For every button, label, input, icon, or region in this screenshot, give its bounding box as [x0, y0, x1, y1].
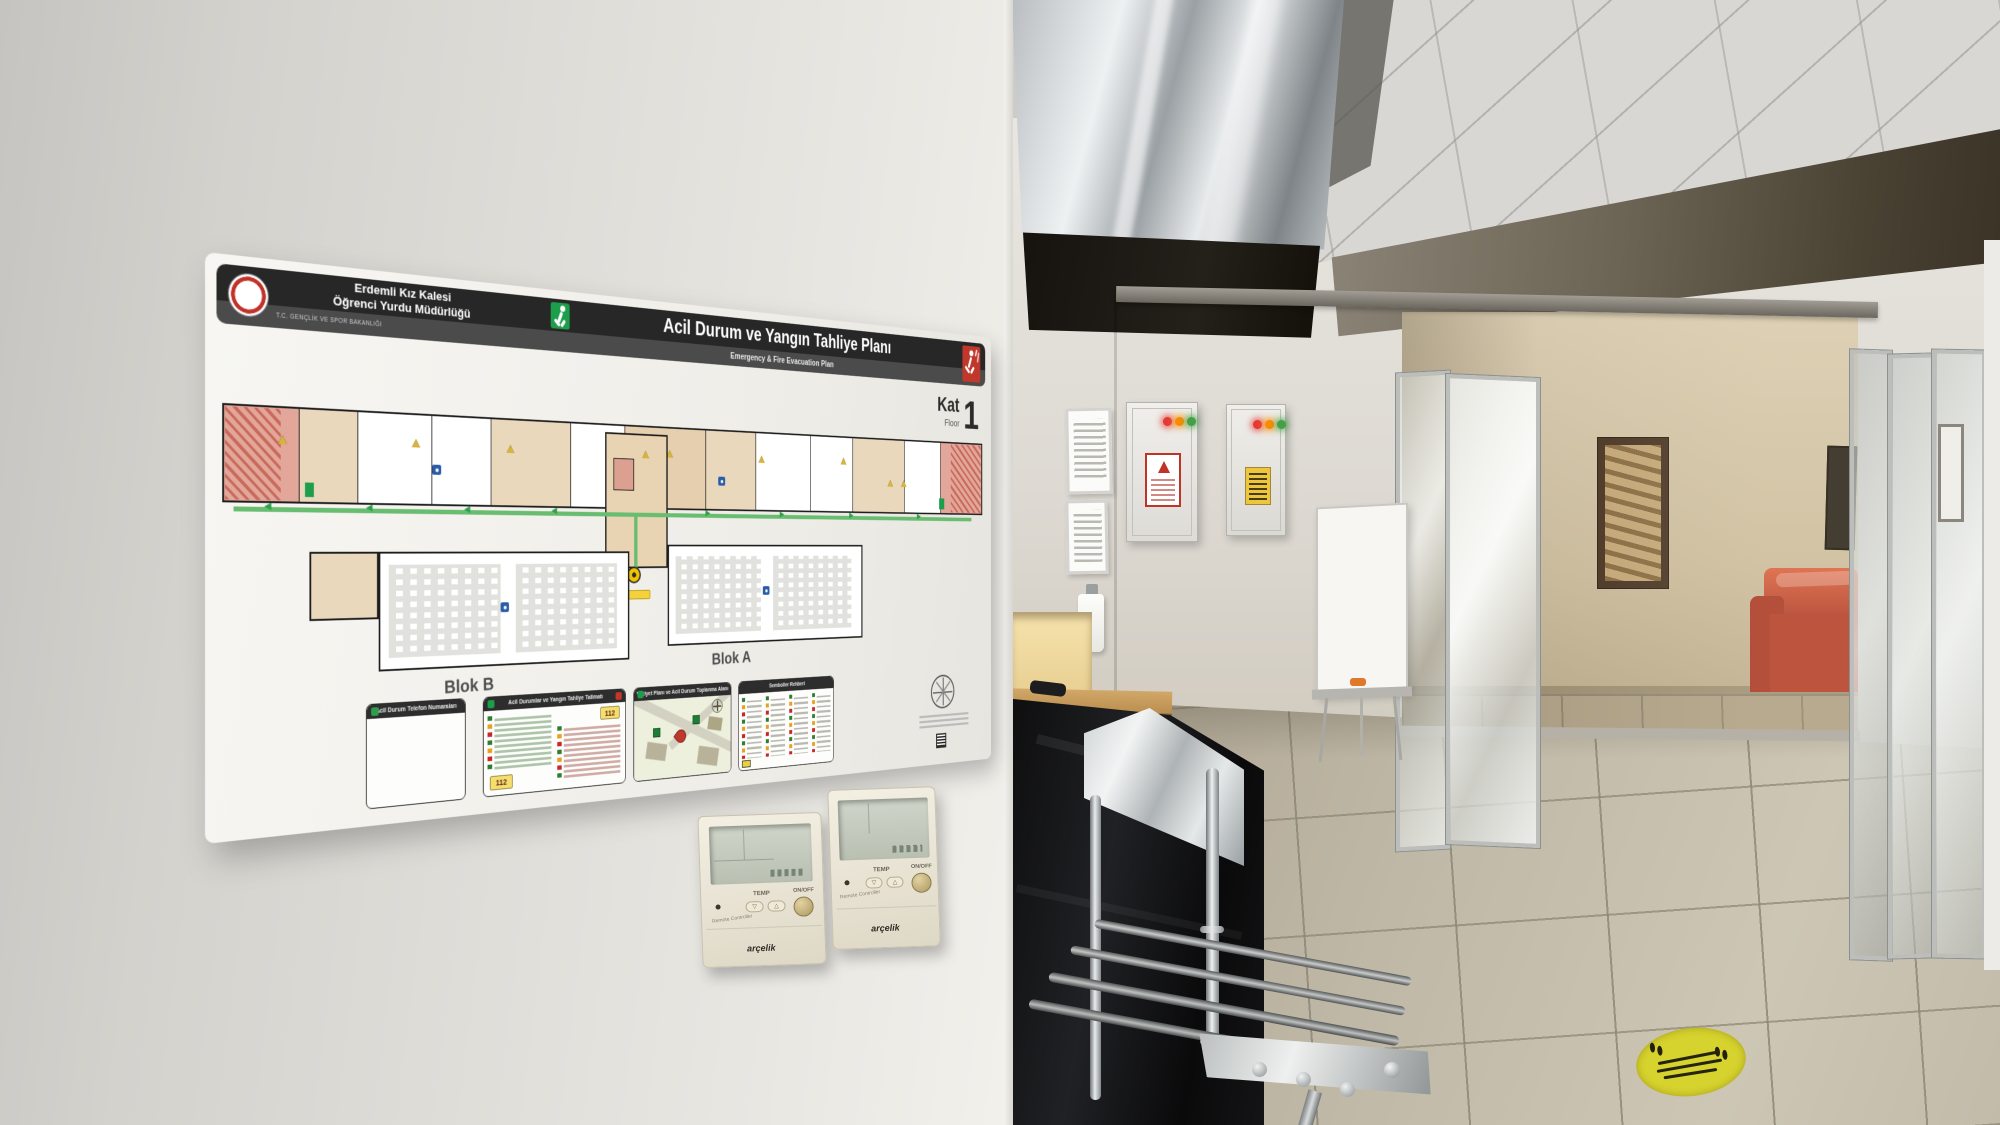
- fire-man-icon: [962, 345, 980, 383]
- plan-room: [853, 438, 904, 512]
- symbol-text-lines: [794, 694, 808, 755]
- plan-room: [755, 433, 810, 511]
- framed-document: [1065, 500, 1108, 575]
- led-amber: [1175, 417, 1184, 426]
- site-map: [634, 695, 731, 782]
- route-arrow-left: ◀: [366, 504, 373, 513]
- framed-document: [1065, 408, 1112, 495]
- thermostat-lcd: [709, 823, 813, 885]
- led-amber: [1265, 420, 1274, 429]
- assembly-point-icon: [653, 728, 660, 738]
- lcd-segment-marks: [892, 845, 922, 853]
- plan-room: [490, 419, 570, 506]
- map-building: [697, 746, 720, 767]
- core-stair-box: [613, 458, 634, 491]
- flipchart-board: [1316, 503, 1408, 698]
- hood-reflection: [1201, 0, 1284, 270]
- route-arrow-right: ▶: [917, 513, 921, 520]
- plan-room-strip: [222, 403, 982, 515]
- symbol-text-lines: [771, 695, 785, 756]
- producer-text-lines: [919, 712, 968, 731]
- lcd-grid-line: [743, 830, 745, 860]
- phones-panel: Acil Durum Telefon Numaraları: [366, 698, 466, 809]
- plan-room: [810, 436, 852, 511]
- open-door-panel: [1446, 374, 1540, 848]
- post-collar: [1200, 926, 1224, 933]
- instruction-text-lines: [564, 722, 621, 778]
- temp-up-button[interactable]: △: [886, 876, 903, 888]
- sticker-text-lines: [1151, 479, 1175, 501]
- electrical-panel: [1126, 402, 1198, 542]
- lobby-photo: Erdemli Kız Kalesi Öğrenci Yurdu Müdürlü…: [0, 0, 2000, 1125]
- floor-label: Floor: [916, 415, 959, 429]
- plan-room: [706, 431, 756, 510]
- orange-marker: [1350, 678, 1366, 686]
- led-red: [1253, 420, 1262, 429]
- facility-icon: [718, 477, 725, 486]
- phone-icon: [371, 707, 379, 716]
- hazard-triangle-icon: [841, 458, 847, 465]
- facility-icon: [501, 602, 509, 612]
- easel-leg: [1319, 698, 1329, 762]
- table-grid: [773, 556, 851, 631]
- thermostat-unit: Remote Controller TEMP ▽ △ ON/OFF arçeli…: [697, 812, 826, 968]
- symbol-text-lines: [817, 692, 831, 752]
- temp-down-button[interactable]: ▽: [865, 877, 882, 889]
- rail-end-knob: [1252, 1062, 1267, 1077]
- assembly-point-icon: [693, 715, 700, 725]
- footprints-icon: [1649, 1041, 1663, 1058]
- lcd-segment-marks: [770, 869, 804, 877]
- plan-room: [904, 441, 940, 513]
- document-text-lines: [1073, 419, 1106, 480]
- status-led: [844, 880, 849, 885]
- hood-dark-underside: [1020, 228, 1320, 340]
- power-button[interactable]: [911, 872, 932, 893]
- block-a-label: Blok A: [712, 648, 751, 669]
- rail-end-knob: [1384, 1062, 1400, 1078]
- case-seam: [706, 925, 822, 930]
- instruction-text-lines: [494, 712, 551, 771]
- hazard-triangle-icon: [278, 435, 287, 444]
- exit-man-icon: [488, 700, 495, 708]
- flipchart-easel: [1308, 500, 1418, 790]
- facility-icon: [763, 586, 770, 595]
- document-text-lines: [1074, 510, 1103, 562]
- phones-panel-header: Acil Durum Telefon Numaraları: [367, 699, 465, 719]
- emergency-number-badge: 112: [490, 774, 513, 790]
- led-green: [1277, 420, 1286, 429]
- hazard-triangle-icon: [901, 480, 906, 487]
- kat-label: Kat: [916, 391, 959, 417]
- thermostat-unit: Remote Controller TEMP ▽ △ ON/OFF arçeli…: [827, 786, 941, 950]
- fire-man-icon: [616, 692, 622, 700]
- exit-door-mark: [305, 482, 314, 497]
- hazard-triangle-icon: [412, 439, 420, 448]
- electrical-panel: [1226, 404, 1286, 536]
- phones-panel-title: Acil Durum Telefon Numaraları: [376, 703, 457, 715]
- block-b-label: Blok B: [444, 674, 494, 699]
- map-building: [645, 742, 667, 761]
- symbol-icons: [812, 693, 815, 752]
- fire-warning-sticker: [1145, 453, 1181, 507]
- map-building: [707, 716, 723, 731]
- easel-leg: [1393, 696, 1403, 760]
- lcd-grid-line: [868, 803, 870, 833]
- symbol-icons: [789, 695, 792, 755]
- instruction-icons: [488, 716, 493, 772]
- temp-down-button[interactable]: ▽: [745, 901, 763, 913]
- power-label: ON/OFF: [911, 863, 932, 870]
- hazard-triangle-icon: [507, 445, 515, 453]
- temp-label: TEMP: [873, 867, 890, 874]
- folding-door-panel: [1850, 349, 1892, 960]
- plan-room: [432, 416, 491, 505]
- stair-hatch: [225, 406, 281, 500]
- evacuation-route-drop: [634, 516, 637, 568]
- plan-room: [357, 412, 431, 504]
- route-arrow-right: ▶: [780, 511, 785, 519]
- producer-compass-logo: [931, 674, 954, 709]
- power-label: ON/OFF: [793, 887, 814, 894]
- emergency-number-badge: 112: [600, 706, 619, 720]
- steel-post: [1206, 768, 1219, 1066]
- route-arrow-left: ◀: [264, 502, 271, 512]
- instruction-icons: [557, 726, 561, 779]
- rail-end-knob: [1340, 1082, 1355, 1097]
- floor-number: 1: [963, 391, 978, 439]
- steel-post: [1090, 795, 1101, 1100]
- symbols-panel: Semboller Rehberi: [738, 676, 834, 772]
- wall-corner-highlight: [1004, 0, 1013, 1125]
- hazard-triangle-icon: [888, 480, 893, 487]
- rail-end-knob: [1296, 1072, 1311, 1087]
- instructions-panel-title: Acil Durumlar ve Yangın Tahliye Talimatı: [508, 694, 603, 706]
- table-grid: [676, 556, 761, 634]
- symbol-icons: [766, 696, 769, 757]
- block-b-hall: [379, 551, 630, 671]
- evacuation-plan-poster: Erdemli Kız Kalesi Öğrenci Yurdu Müdürlü…: [205, 252, 991, 844]
- status-led: [715, 904, 720, 909]
- table-grid: [516, 563, 617, 652]
- hood-reflection: [1108, 0, 1174, 269]
- power-button[interactable]: [793, 896, 814, 917]
- floor-plan: ◀ ◀ ◀ ◀ ▶ ▶ ▶ ▶: [222, 403, 982, 701]
- hazard-triangle-icon: [759, 456, 765, 463]
- stainless-hood: [1012, 0, 1344, 252]
- thermostat-lcd: [838, 797, 930, 860]
- sticker-text-lines: [1249, 473, 1267, 501]
- led-green: [1187, 417, 1196, 426]
- assembly-point-icon: [638, 691, 644, 699]
- siteplan-panel: Vaziyet Planı ve Acil Durum Toplanma Ala…: [633, 682, 731, 782]
- yellow-warning-sticker: [1245, 467, 1271, 505]
- floor-number-block: Kat Floor 1: [916, 390, 984, 445]
- exit-man-icon: [551, 302, 570, 330]
- exit-door-mark: [939, 498, 944, 509]
- route-arrow-left: ◀: [464, 505, 470, 514]
- hazard-triangle-icon: [642, 451, 649, 459]
- brand-label: arçelik: [871, 922, 900, 933]
- route-arrow-left: ◀: [551, 507, 557, 516]
- remote-controller-label: Remote Controller: [712, 913, 753, 925]
- route-arrow-right: ▶: [705, 510, 710, 518]
- lcd-grid-line: [714, 859, 774, 862]
- remote-controller-label: Remote Controller: [840, 889, 881, 901]
- qr-code: [936, 733, 946, 749]
- block-a-hall: [668, 545, 863, 646]
- wall-corner-line: [1114, 300, 1117, 710]
- far-right-jamb: [1984, 240, 2000, 970]
- far-right-frame: [1938, 424, 1964, 522]
- symbol-text-lines: [747, 697, 762, 759]
- facility-icon: [432, 465, 441, 475]
- warning-flame-glyph: [1158, 461, 1170, 473]
- assembly-area-icon: [742, 760, 751, 768]
- easel-leg: [1360, 698, 1363, 756]
- instructions-panel: Acil Durumlar ve Yangın Tahliye Talimatı…: [483, 688, 626, 797]
- compass-rose: [712, 699, 723, 714]
- table-grid: [389, 564, 501, 658]
- brand-label: arçelik: [747, 943, 776, 954]
- symbols-panel-title: Semboller Rehberi: [769, 681, 805, 689]
- case-seam: [836, 905, 936, 909]
- route-arrow-right: ▶: [849, 512, 853, 520]
- symbols-panel-header: Semboller Rehberi: [739, 676, 833, 694]
- led-red: [1163, 417, 1172, 426]
- temp-label: TEMP: [753, 891, 770, 898]
- stair-hatch: [951, 444, 981, 513]
- symbol-icons: [742, 698, 745, 759]
- temp-up-button[interactable]: △: [767, 900, 785, 912]
- folding-door-panel: [1888, 353, 1936, 958]
- annex-room: [309, 552, 378, 621]
